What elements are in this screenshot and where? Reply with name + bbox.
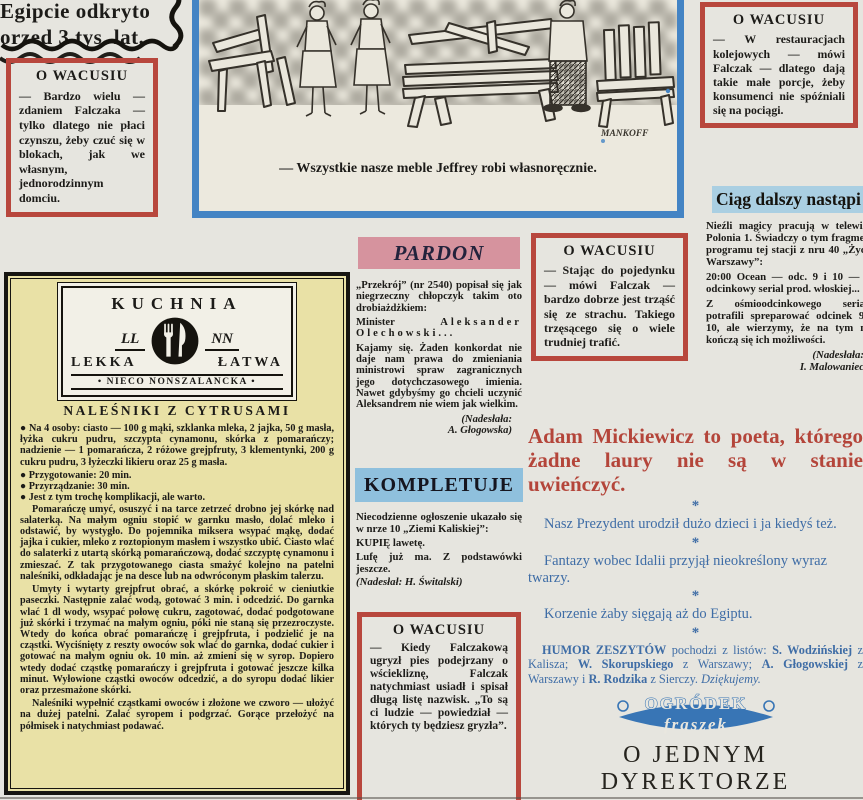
kompletuje-header: KOMPLETUJE xyxy=(355,468,523,502)
wacusiu-box-dog: O WACUSIU — Kiedy Falczakową ugryzł pies… xyxy=(357,612,521,800)
aphorism: Korzenie żaby sięgają aż do Egiptu. xyxy=(528,606,863,623)
pardon-article: „Przekrój” (nr 2540) popisał się jak nie… xyxy=(356,280,522,436)
wacusiu-title: O WACUSIU xyxy=(713,12,845,29)
recipe-paragraph: Naleśniki wypełnić cząstkami owoców i zł… xyxy=(20,698,334,732)
recipe-paragraph: Pomarańczę umyć, osuszyć i na tarce zetr… xyxy=(20,504,334,583)
wacusiu-title: O WACUSIU xyxy=(19,68,145,86)
ciag-paragraph: 20:00 Ocean — odc. 9 i 10 — 8-odcinkowy … xyxy=(706,271,863,295)
wacusiu-box-restaurant: O WACUSIU — W restauracjach kolejowych —… xyxy=(700,2,858,128)
logo-top-text: OGRÓDEK xyxy=(644,694,747,713)
logo-bottom-text: fraszek xyxy=(663,715,727,734)
wacusiu-text: — Bardzo wielu — zdaniem Falczaka — tylk… xyxy=(19,89,145,206)
pardon-signature: (Nadesłała:A. Głogowska) xyxy=(356,414,512,437)
cartoon-panel: MANKOFF — Wszystkie nasze meble Jeffrey … xyxy=(192,0,684,218)
kompletuje-paragraph: Niecodzienne ogłoszenie ukazało się w nr… xyxy=(356,512,522,536)
asterisk-separator: * xyxy=(528,628,863,638)
recipe-paragraph: Umyty i wytarty grejpfrut obrać, a skórk… xyxy=(20,584,334,696)
cartoon-caption: — Wszystkie nasze meble Jeffrey robi wła… xyxy=(199,161,677,177)
asterisk-separator: * xyxy=(528,591,863,601)
dyrektor-title: O JEDNYM DYREKTORZE xyxy=(528,742,863,796)
rubric-word-lekka: LEKKA xyxy=(71,355,137,371)
wacusiu-text: — W restauracjach kolejowych — mówi Falc… xyxy=(713,32,845,117)
ciag-paragraph: Nieźli magicy pracują w telewizji Poloni… xyxy=(706,220,863,268)
recipe-bullet: ● Przyrządzanie: 30 min. xyxy=(20,481,334,492)
pardon-header: PARDON xyxy=(358,237,520,269)
aphorism: Fantazy wobec Idalii przyjął nieokreślon… xyxy=(528,553,863,586)
rubric-word-latwa: ŁATWA xyxy=(218,355,283,371)
wacusiu-box-flat: O WACUSIU — Bardzo wielu — zdaniem Falcz… xyxy=(6,58,158,217)
ciag-paragraph: Z ośmioodcinkowego serialu potrafili spr… xyxy=(706,298,863,346)
aphorism: Nasz Prezydent urodził dużo dzieci i ja … xyxy=(528,516,863,533)
rubric-title: KUCHNIA xyxy=(71,294,283,314)
wacusiu-title: O WACUSIU xyxy=(544,243,675,260)
recipe-bullet: ● Przygotowanie: 20 min. xyxy=(20,470,334,481)
humor-credits: HUMOR ZESZYTÓW pochodzi z listów: S. Wod… xyxy=(528,643,863,686)
recipe-intro: ● Na 4 osoby: ciasto — 100 g mąki, szkla… xyxy=(20,423,334,468)
kompletuje-paragraph: Lufę już ma. Z podstawówki jeszcze. xyxy=(356,552,522,576)
rubric-monogram-left: LL xyxy=(115,331,145,351)
ciag-dalszy-header: Ciąg dalszy nastąpi xyxy=(712,186,863,213)
print-dot xyxy=(601,139,605,143)
wacusiu-title: O WACUSIU xyxy=(370,622,508,639)
kuchnia-rubric: KUCHNIA LL NN LEKKA ŁATWA xyxy=(61,286,293,397)
asterisk-separator: * xyxy=(528,501,863,511)
kompletuje-signature: (Nadesłał: H. Świtalski) xyxy=(356,577,522,589)
rubric-monogram-right: NN xyxy=(205,331,239,351)
humor-zeszytow-section: Adam Mickiewicz to poeta, którego żadne … xyxy=(528,424,863,800)
recipe-title: NALEŚNIKI Z CYTRUSAMI xyxy=(20,403,334,419)
pardon-paragraph: Kajamy się. Żaden konkordat nie daje nam… xyxy=(356,343,522,411)
ciag-signature: (Nadesłała:I. Malowaniec xyxy=(706,349,863,373)
wacusiu-text: — Stając do pojedynku — mówi Falczak — b… xyxy=(544,263,675,349)
kompletuje-article: Niecodzienne ogłoszenie ukazało się w nr… xyxy=(356,512,522,591)
wacusiu-box-duel: O WACUSIU — Stając do pojedynku — mówi F… xyxy=(531,233,688,361)
pardon-paragraph: „Przekrój” (nr 2540) popisał się jak nie… xyxy=(356,280,522,314)
mickiewicz-heading: Adam Mickiewicz to poeta, którego żadne … xyxy=(528,424,863,496)
print-dot xyxy=(666,89,670,93)
recipe-box: KUCHNIA LL NN LEKKA ŁATWA xyxy=(4,272,350,795)
cartoon-drawing: MANKOFF xyxy=(199,0,677,159)
magazine-page: Egipcie odkryto orzed 3 tys. lat. xyxy=(0,0,863,800)
kompletuje-ad: KUPIĘ lawetę. xyxy=(356,538,522,550)
fork-knife-icon xyxy=(149,315,201,367)
wacusiu-text: — Kiedy Falczakową ugryzł pies podejrzan… xyxy=(370,642,508,734)
pardon-minister-line: Minister Aleksander Olechowski... xyxy=(356,317,522,340)
article-fragment: Egipcie odkryto orzed 3 tys. lat. xyxy=(0,0,190,60)
ciag-dalszy-article: Nieźli magicy pracują w telewizji Poloni… xyxy=(706,220,863,373)
recipe-bullet: ● Jest z tym trochę komplikacji, ale war… xyxy=(20,492,334,503)
cartoonist-signature: MANKOFF xyxy=(600,129,649,139)
ogrodek-fraszek-logo: OGRÓDEK fraszek xyxy=(611,690,781,740)
asterisk-separator: * xyxy=(528,538,863,548)
rubric-subtitle: • NIECO NONSZALANCKA • xyxy=(71,374,283,390)
